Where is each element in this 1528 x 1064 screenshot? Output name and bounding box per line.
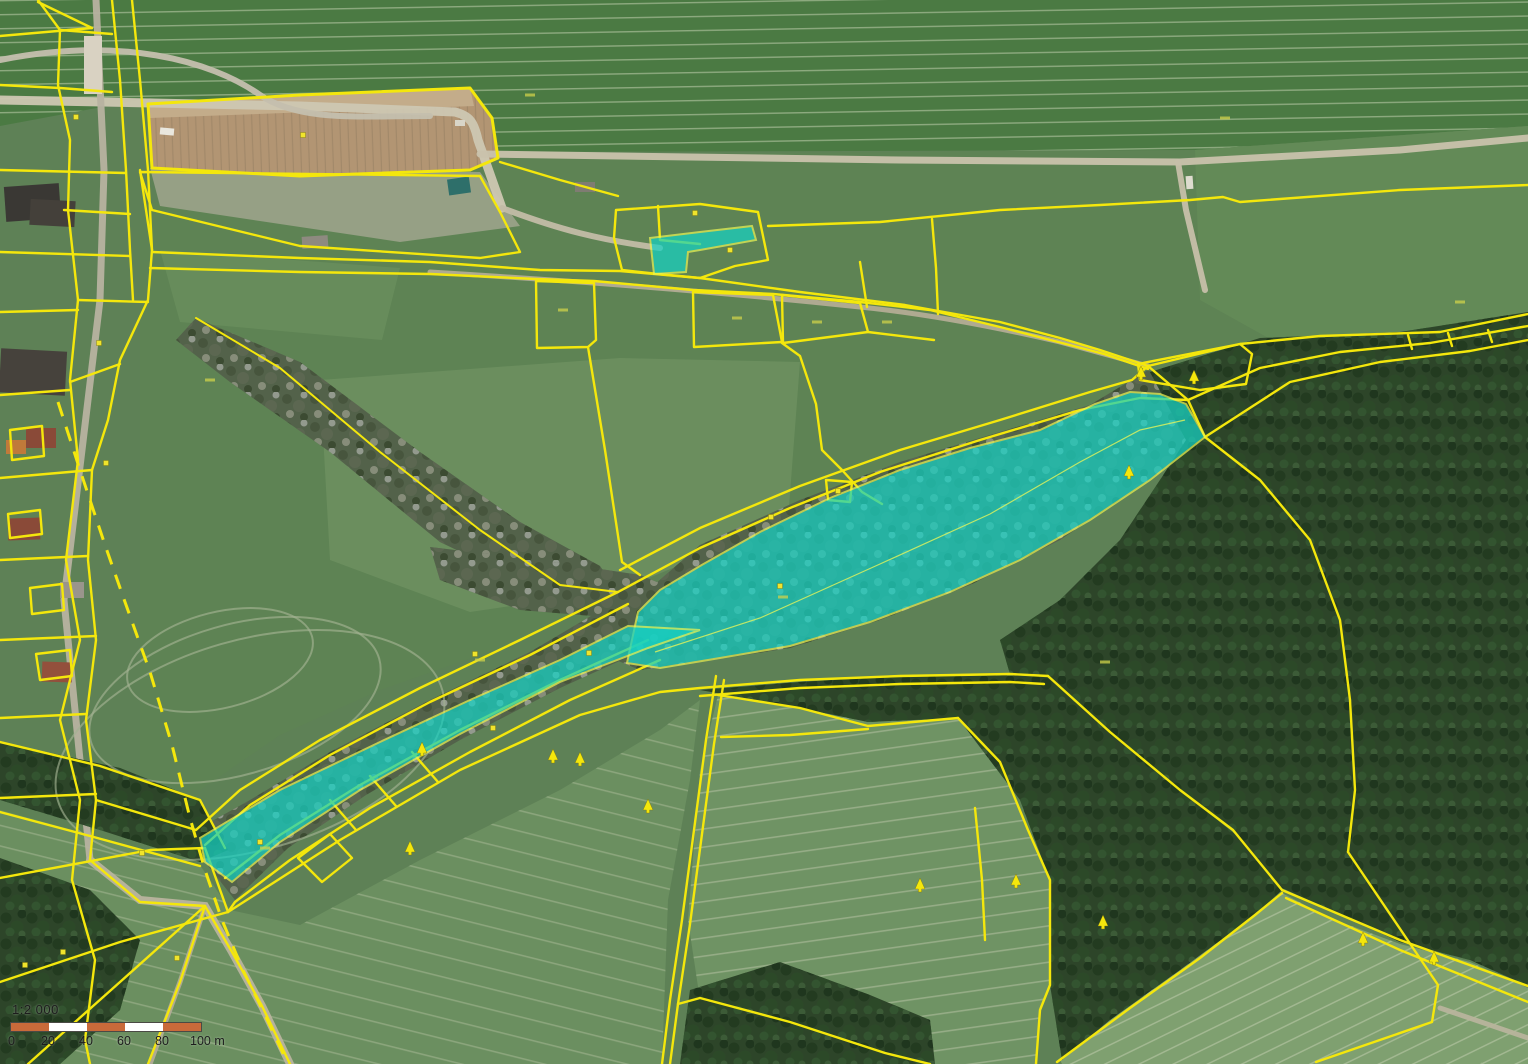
map-scale-ratio: 1:2 000 [12, 1002, 248, 1017]
map-viewport[interactable]: 1:2 000 0 20 40 60 80 100 m [0, 0, 1528, 1064]
parcel-centroid-marker [473, 652, 478, 657]
parcel-centroid-marker [23, 963, 28, 968]
parcel-number-mark [205, 379, 215, 382]
building-roof [26, 428, 56, 448]
scale-bar-segment [49, 1023, 87, 1031]
parcel-centroid-marker [175, 956, 180, 961]
building-roof [1186, 176, 1194, 189]
scale-label-40: 40 [79, 1034, 93, 1048]
parcel-number-mark [475, 659, 485, 662]
building-roof [455, 120, 465, 126]
scale-bar: 1:2 000 0 20 40 60 80 100 m [8, 1002, 248, 1060]
building-roof [84, 36, 102, 94]
parcel-centroid-marker [778, 584, 783, 589]
scale-bar-segment [87, 1023, 125, 1031]
parcel-centroid-marker [491, 726, 496, 731]
parcel-number-mark [812, 321, 822, 324]
scale-bar-segment [125, 1023, 163, 1031]
parcel-centroid-marker [728, 248, 733, 253]
building-roof [6, 440, 26, 454]
scale-label-60: 60 [117, 1034, 131, 1048]
building-roof [0, 348, 67, 395]
parcel-centroid-marker [587, 651, 592, 656]
parcel-number-mark [1220, 117, 1230, 120]
cadastral-orthophoto-map[interactable] [0, 0, 1528, 1064]
parcel-number-mark [732, 317, 742, 320]
parcel-number-mark [1455, 301, 1465, 304]
scale-label-80: 80 [155, 1034, 169, 1048]
building-roof [160, 127, 175, 135]
parcel-number-mark [1100, 661, 1110, 664]
building-roof [447, 177, 471, 196]
parcel-number-mark [260, 847, 270, 850]
parcel-number-mark [882, 321, 892, 324]
parcel-centroid-marker [693, 211, 698, 216]
parcel-number-mark [558, 309, 568, 312]
parcel-number-mark [778, 596, 788, 599]
parcel-centroid-marker [836, 489, 841, 494]
parcel-number-mark [525, 94, 535, 97]
scale-label-0: 0 [8, 1034, 15, 1048]
parcel-centroid-marker [104, 461, 109, 466]
parcel-centroid-marker [97, 341, 102, 346]
scale-label-100m: 100 m [190, 1034, 225, 1048]
scale-label-20: 20 [41, 1034, 55, 1048]
parcel-centroid-marker [301, 133, 306, 138]
parcel-centroid-marker [258, 840, 263, 845]
parcel-centroid-marker [74, 115, 79, 120]
parcel-centroid-marker [61, 950, 66, 955]
scale-bar-segment [163, 1023, 201, 1031]
scale-bar-labels: 0 20 40 60 80 100 m [8, 1034, 248, 1050]
parcel-centroid-marker [140, 851, 145, 856]
scale-bar-segment [11, 1023, 49, 1031]
parcel-centroid-marker [769, 515, 774, 520]
scale-bar-segments [10, 1022, 202, 1032]
